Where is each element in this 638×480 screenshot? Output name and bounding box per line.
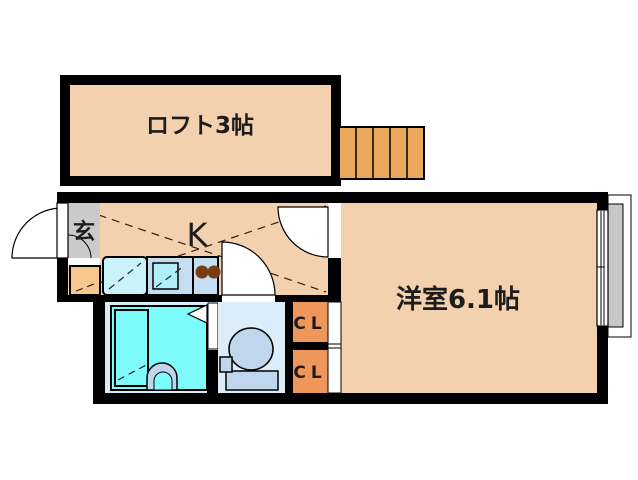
shower-faucet-icon [147,363,177,390]
closet-divider-wall [285,342,328,350]
sliding-window-icon [597,210,608,326]
entrance-label: 玄 [73,219,95,245]
entrance-threshold [68,258,100,266]
bottom-wall [93,393,608,404]
toilet-door-opening [222,295,275,302]
entrance-door-leaf [57,203,68,258]
top-wall [57,192,608,203]
balcony [608,195,631,337]
right-wall-lower [597,326,608,393]
toilet-left-wall [207,350,218,393]
western-room-label: 洋室6.1帖 [396,284,520,315]
floorplan-canvas: ロフト3帖 玄 K [0,0,638,480]
closet-upper-label: CL [293,314,326,334]
stairs-icon [339,127,424,179]
closet-lower-label: CL [293,363,326,383]
corridor-room-wall [328,258,341,302]
kitchen-sink-icon [147,257,193,295]
bathroom-left-wall [93,302,105,393]
entrance-step [70,266,100,295]
washing-machine-pan-icon [103,257,147,295]
kitchen-label: K [187,216,209,254]
loft-label: ロフト3帖 [146,113,254,139]
sliding-closet-door-icon [328,302,341,393]
gas-stove-icon [193,257,221,295]
corridor-south-wall [57,295,341,302]
left-wall [57,258,68,302]
bathtub-icon [115,310,148,386]
floorplan-drawing: ロフト3帖 玄 K [0,0,638,480]
